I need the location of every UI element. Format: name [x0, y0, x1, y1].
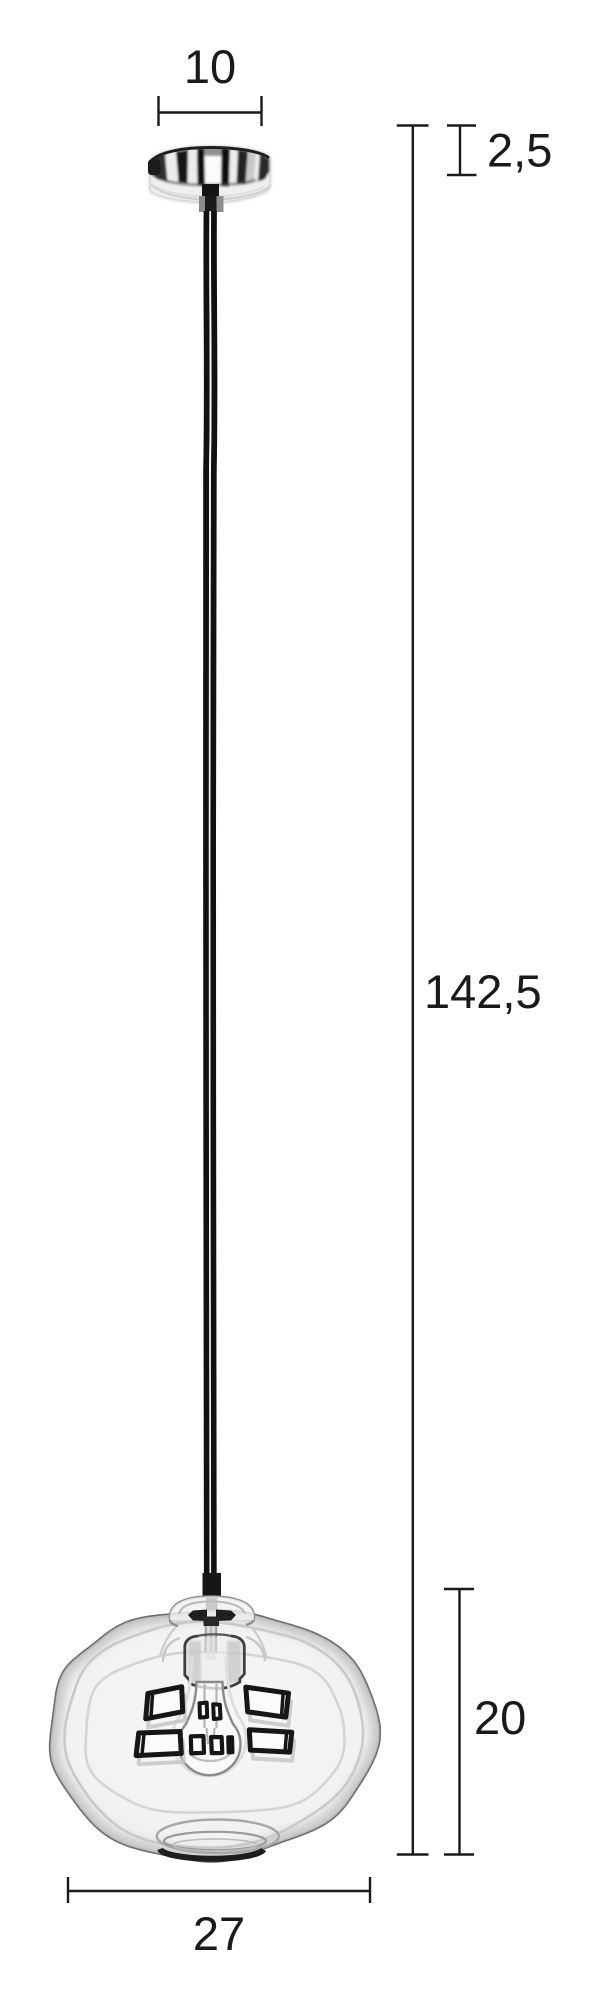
- svg-text:10: 10: [184, 40, 236, 93]
- svg-text:2,5: 2,5: [487, 124, 552, 177]
- svg-text:27: 27: [193, 1907, 245, 1960]
- svg-text:142,5: 142,5: [424, 965, 542, 1018]
- svg-text:20: 20: [474, 1691, 526, 1744]
